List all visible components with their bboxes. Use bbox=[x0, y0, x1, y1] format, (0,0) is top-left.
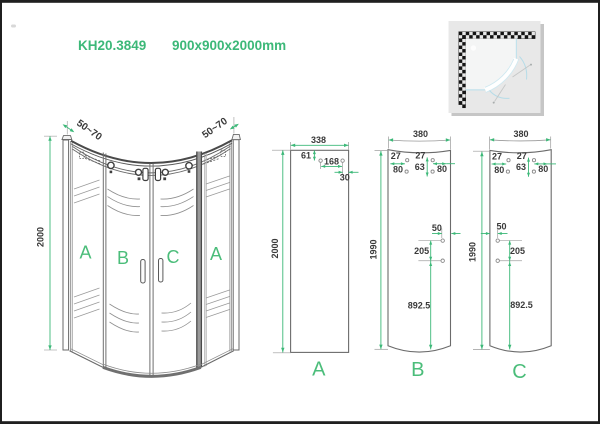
svg-text:61: 61 bbox=[301, 150, 311, 160]
svg-text:A: A bbox=[210, 244, 222, 264]
svg-text:205: 205 bbox=[414, 246, 429, 256]
svg-text:27: 27 bbox=[415, 151, 425, 161]
svg-text:27: 27 bbox=[391, 151, 401, 161]
svg-text:27: 27 bbox=[517, 151, 527, 161]
svg-text:892.5: 892.5 bbox=[510, 300, 533, 310]
svg-text:63: 63 bbox=[516, 162, 526, 172]
svg-text:63: 63 bbox=[415, 162, 425, 172]
svg-text:A: A bbox=[312, 359, 326, 381]
svg-text:80: 80 bbox=[437, 164, 447, 174]
svg-text:380: 380 bbox=[513, 129, 528, 139]
svg-text:C: C bbox=[512, 361, 526, 383]
svg-text:80: 80 bbox=[393, 165, 403, 175]
svg-text:50: 50 bbox=[432, 223, 442, 233]
svg-text:27: 27 bbox=[492, 152, 502, 162]
svg-text:205: 205 bbox=[510, 246, 525, 256]
svg-text:C: C bbox=[167, 247, 180, 267]
svg-text:338: 338 bbox=[311, 135, 326, 145]
svg-text:892.5: 892.5 bbox=[408, 301, 431, 311]
svg-text:B: B bbox=[411, 359, 424, 381]
svg-text:A: A bbox=[79, 243, 91, 263]
svg-text:2000: 2000 bbox=[36, 227, 46, 247]
svg-text:30: 30 bbox=[340, 172, 350, 182]
svg-text:80: 80 bbox=[538, 164, 548, 174]
svg-text:1990: 1990 bbox=[369, 239, 379, 259]
svg-text:80: 80 bbox=[494, 165, 504, 175]
svg-text:380: 380 bbox=[413, 129, 428, 139]
svg-text:1990: 1990 bbox=[468, 242, 478, 262]
svg-text:2000: 2000 bbox=[270, 238, 280, 258]
svg-text:900x900x2000mm: 900x900x2000mm bbox=[172, 38, 286, 53]
svg-text:KH20.3849: KH20.3849 bbox=[78, 38, 146, 53]
svg-text:168: 168 bbox=[324, 157, 339, 167]
svg-text:B: B bbox=[117, 248, 129, 268]
